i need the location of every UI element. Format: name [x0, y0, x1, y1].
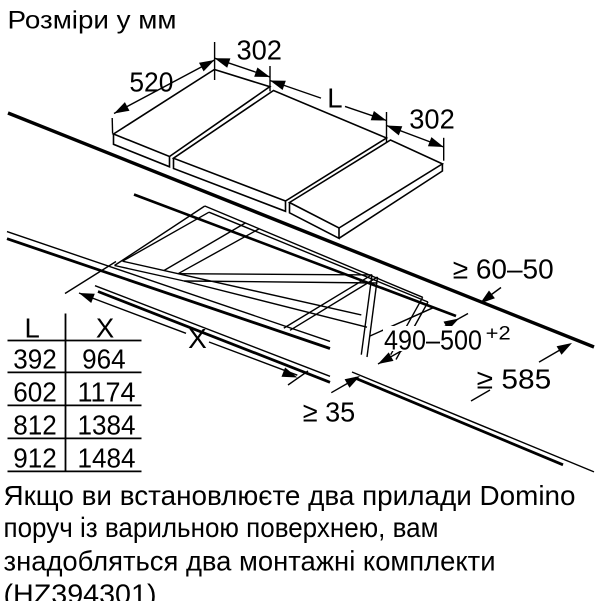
svg-text:X: X: [96, 313, 114, 344]
svg-text:602: 602: [13, 377, 57, 408]
svg-text:+2: +2: [486, 324, 511, 345]
svg-text:520: 520: [129, 66, 173, 97]
svg-text:964: 964: [82, 344, 126, 375]
svg-text:Якщо ви встановлюєте два прила: Якщо ви встановлюєте два прилади Domino: [4, 480, 576, 511]
svg-text:1384: 1384: [78, 410, 136, 441]
svg-text:≥ 60–50: ≥ 60–50: [453, 254, 554, 285]
svg-text:1174: 1174: [78, 377, 136, 408]
svg-text:812: 812: [13, 410, 57, 441]
svg-text:490–500: 490–500: [384, 325, 482, 356]
svg-text:≥ 35: ≥ 35: [303, 397, 356, 428]
svg-text:302: 302: [236, 35, 282, 66]
svg-text:L: L: [327, 83, 342, 114]
svg-text:знадобляться два монтажні комп: знадобляться два монтажні комплекти: [4, 545, 496, 576]
svg-text:392: 392: [13, 344, 57, 375]
svg-text:1484: 1484: [78, 443, 136, 474]
svg-text:Розміри у мм: Розміри у мм: [8, 7, 177, 35]
svg-text:912: 912: [13, 443, 57, 474]
svg-text:302: 302: [409, 104, 455, 135]
svg-text:(HZ394301): (HZ394301): [4, 578, 157, 601]
svg-text:X: X: [188, 323, 207, 354]
svg-text:L: L: [25, 313, 40, 344]
svg-text:поруч із варильною поверхнею,: поруч із варильною поверхнею, вам: [4, 512, 439, 543]
svg-text:≥ 585: ≥ 585: [477, 364, 552, 395]
